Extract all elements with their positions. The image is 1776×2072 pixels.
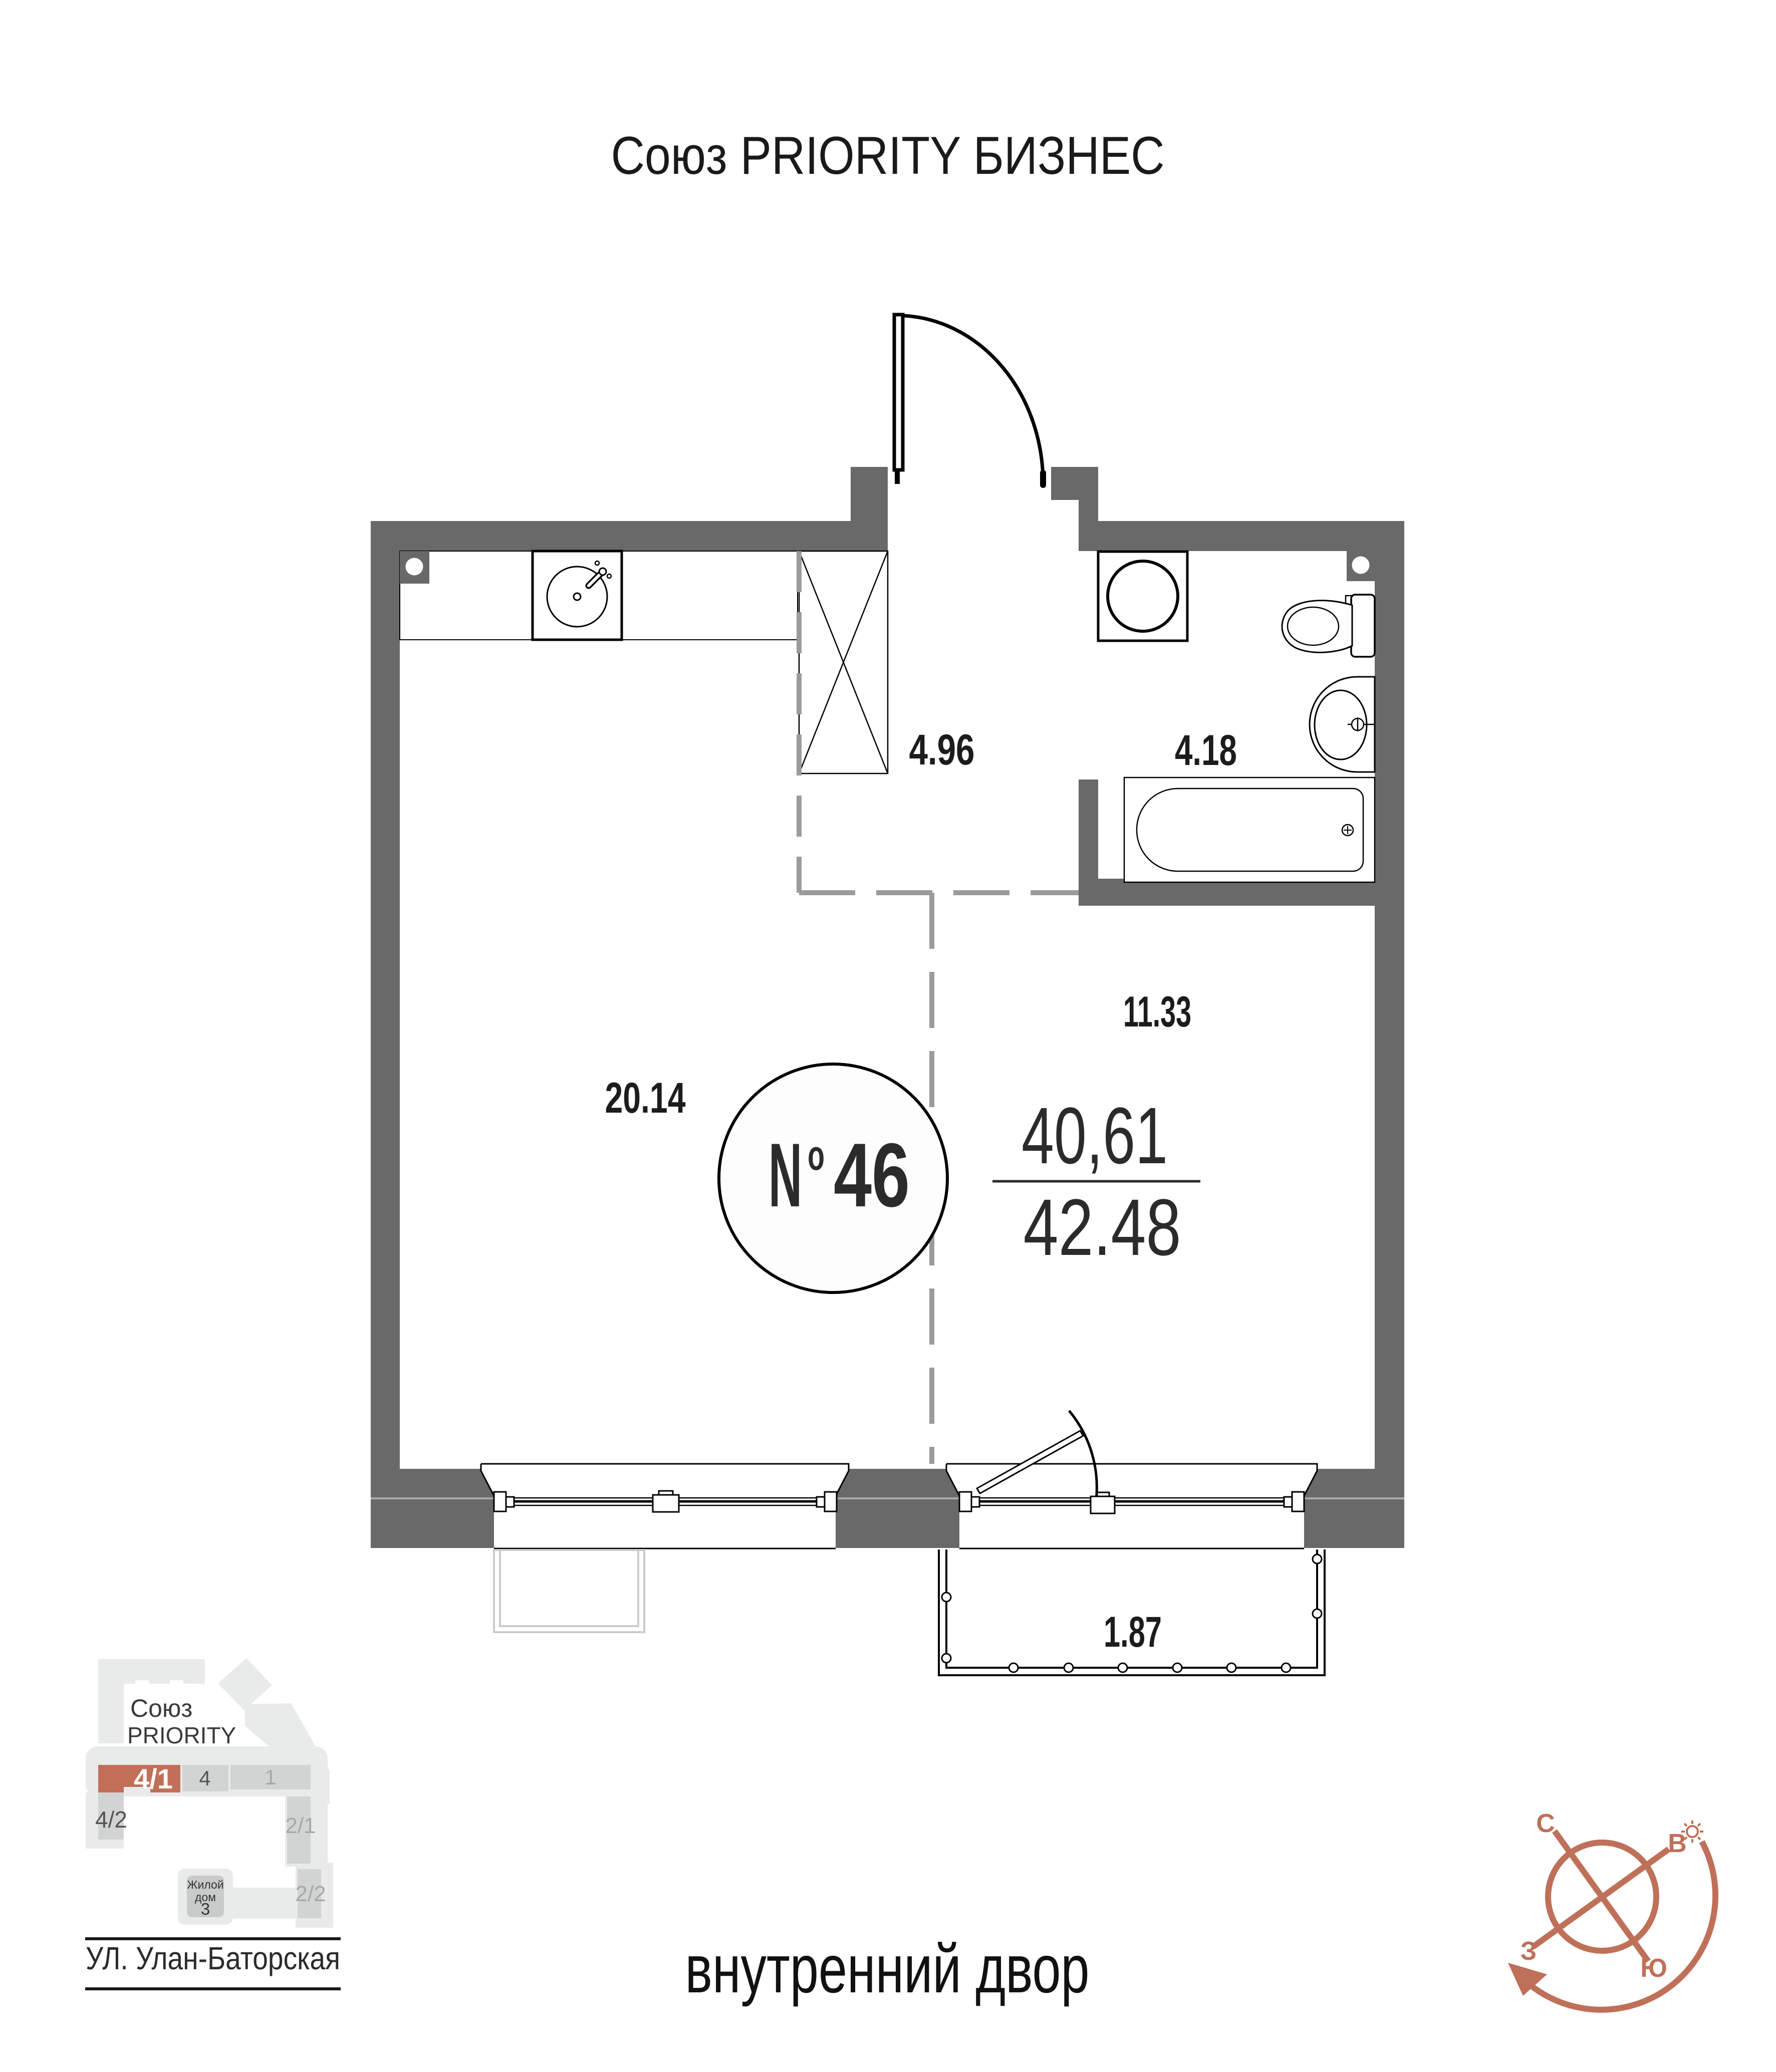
svg-text:4: 4 — [199, 1766, 210, 1790]
svg-text:внутренний двор: внутренний двор — [685, 1931, 1090, 2007]
svg-text:3: 3 — [201, 1900, 210, 1918]
svg-text:11.33: 11.33 — [1123, 988, 1191, 1036]
svg-text:42.48: 42.48 — [1024, 1182, 1181, 1272]
svg-text:Жилой: Жилой — [187, 1878, 223, 1891]
svg-text:Союз PRIORITY БИЗНЕС: Союз PRIORITY БИЗНЕС — [611, 125, 1165, 185]
svg-text:С: С — [1536, 1809, 1555, 1838]
svg-text:УЛ. Улан-Баторская: УЛ. Улан-Баторская — [86, 1940, 340, 1976]
svg-text:Ю: Ю — [1640, 1954, 1667, 1983]
svg-text:N: N — [769, 1125, 802, 1226]
svg-text:В: В — [1668, 1829, 1687, 1858]
svg-text:20.14: 20.14 — [605, 1074, 686, 1122]
svg-text:1.87: 1.87 — [1104, 1608, 1162, 1656]
svg-text:4.96: 4.96 — [909, 726, 975, 774]
svg-text:2/2: 2/2 — [295, 1882, 326, 1906]
svg-text:З: З — [1520, 1937, 1537, 1966]
svg-text:o: o — [808, 1132, 825, 1179]
svg-text:4/2: 4/2 — [95, 1806, 127, 1833]
svg-text:PRIORITY: PRIORITY — [127, 1722, 236, 1748]
svg-text:2/1: 2/1 — [285, 1814, 316, 1838]
svg-text:4.18: 4.18 — [1175, 726, 1237, 774]
svg-text:4/1: 4/1 — [134, 1763, 173, 1794]
svg-text:Союз: Союз — [130, 1694, 192, 1722]
svg-text:46: 46 — [834, 1125, 910, 1226]
svg-text:1: 1 — [265, 1765, 276, 1789]
svg-text:40,61: 40,61 — [1022, 1091, 1168, 1180]
